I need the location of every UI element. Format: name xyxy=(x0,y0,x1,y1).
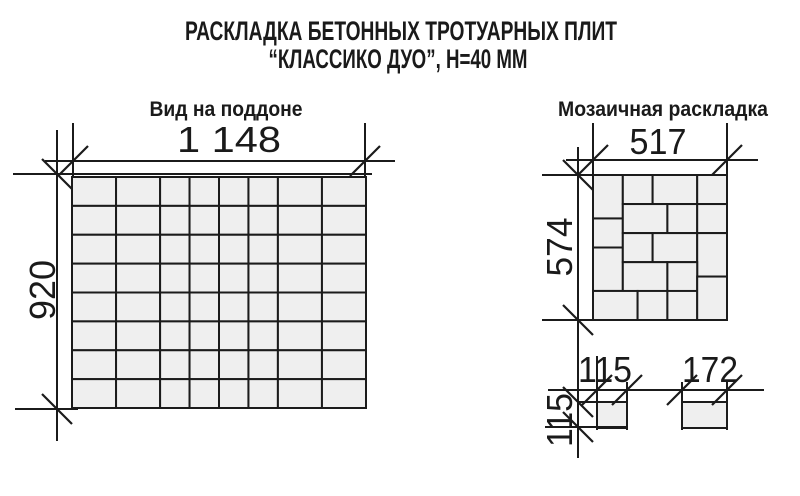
pallet-tile xyxy=(322,350,366,379)
pallet-tile xyxy=(160,350,189,379)
pallet-tile xyxy=(190,321,219,350)
pallet-tile xyxy=(72,350,116,379)
mosaic-tile xyxy=(623,233,653,262)
pallet-tile xyxy=(190,177,219,206)
pallet-tile xyxy=(72,293,116,322)
pallet-tile xyxy=(190,206,219,235)
mosaic-tile xyxy=(593,248,623,291)
pallet-height-dimension: 920 xyxy=(22,260,63,320)
pallet-tile xyxy=(322,235,366,264)
pallet-tile xyxy=(248,177,277,206)
pallet-tile xyxy=(219,177,248,206)
mosaic-pattern xyxy=(593,175,727,320)
pallet-tile xyxy=(219,321,248,350)
pallet-tile xyxy=(322,206,366,235)
pallet-tile xyxy=(278,264,322,293)
pallet-tile xyxy=(278,321,322,350)
pallet-tile xyxy=(278,177,322,206)
mosaic-tile xyxy=(697,233,727,276)
mosaic-tile xyxy=(653,233,698,262)
pallet-tile xyxy=(219,235,248,264)
pallet-tile xyxy=(160,206,189,235)
pallet-tile xyxy=(248,235,277,264)
pallet-tile xyxy=(219,264,248,293)
rect-tile-sample xyxy=(682,402,727,428)
mosaic-tile xyxy=(667,262,697,291)
pallet-tile xyxy=(278,350,322,379)
pallet-tile xyxy=(116,264,160,293)
pallet-tile xyxy=(72,235,116,264)
main-title-line2: “КЛАССИКО ДУО”, Н=40 ММ xyxy=(269,44,528,74)
pallet-tile xyxy=(248,321,277,350)
pallet-tile xyxy=(116,177,160,206)
pallet-tile xyxy=(116,293,160,322)
pallet-tile xyxy=(322,321,366,350)
pallet-tile xyxy=(116,321,160,350)
mosaic-tile xyxy=(623,262,668,291)
mosaic-tile xyxy=(623,175,653,204)
pallet-tile xyxy=(160,321,189,350)
square-tile-width-dimension: 115 xyxy=(578,349,632,390)
pallet-grid xyxy=(72,177,366,408)
pallet-tile xyxy=(190,350,219,379)
mosaic-tile xyxy=(593,218,623,247)
pallet-view-label: Вид на поддоне xyxy=(150,98,303,121)
mosaic-tile xyxy=(653,175,698,204)
paving-layout-diagram: РАСКЛАДКА БЕТОННЫХ ТРОТУАРНЫХ ПЛИТ “КЛАС… xyxy=(0,0,800,496)
mosaic-tile xyxy=(667,291,697,320)
mosaic-height-dimension: 574 xyxy=(539,218,580,277)
pallet-tile xyxy=(322,379,366,408)
pallet-tile xyxy=(160,379,189,408)
pallet-tile xyxy=(278,293,322,322)
pallet-tile xyxy=(116,379,160,408)
mosaic-layout-label: Мозаичная раскладка xyxy=(558,98,768,121)
rect-tile-width-dimension: 172 xyxy=(682,349,738,390)
pallet-tile xyxy=(72,321,116,350)
pallet-tile xyxy=(278,206,322,235)
pallet-tile xyxy=(322,293,366,322)
pallet-tile xyxy=(160,264,189,293)
pallet-tile xyxy=(322,264,366,293)
mosaic-tile xyxy=(623,204,668,233)
pallet-tile xyxy=(219,293,248,322)
pallet-tile xyxy=(72,206,116,235)
pallet-tile xyxy=(248,206,277,235)
pallet-tile xyxy=(248,293,277,322)
single-tiles xyxy=(597,402,727,428)
pallet-tile xyxy=(190,264,219,293)
pallet-tile xyxy=(219,206,248,235)
mosaic-tile xyxy=(593,291,638,320)
mosaic-width-dimension: 517 xyxy=(630,121,687,162)
pallet-tile xyxy=(160,235,189,264)
square-tile-height-dimension: 115 xyxy=(539,393,580,447)
mosaic-tile xyxy=(593,175,623,218)
pallet-tile xyxy=(160,177,189,206)
pallet-tile xyxy=(190,379,219,408)
mosaic-tile xyxy=(667,204,697,233)
pallet-tile xyxy=(72,177,116,206)
paving-layout-drawing: РАСКЛАДКА БЕТОННЫХ ТРОТУАРНЫХ ПЛИТ “КЛАС… xyxy=(0,0,800,496)
pallet-tile xyxy=(116,206,160,235)
pallet-tile xyxy=(219,379,248,408)
pallet-width-dimension: 1 148 xyxy=(177,119,281,160)
pallet-tile xyxy=(116,235,160,264)
pallet-tile xyxy=(248,379,277,408)
pallet-tile xyxy=(248,350,277,379)
pallet-tile xyxy=(248,264,277,293)
pallet-tile xyxy=(278,235,322,264)
mosaic-tile xyxy=(638,291,668,320)
mosaic-tile xyxy=(697,175,727,204)
pallet-tile xyxy=(219,350,248,379)
pallet-tile xyxy=(278,379,322,408)
pallet-tile xyxy=(190,235,219,264)
pallet-tile xyxy=(322,177,366,206)
pallet-tile xyxy=(116,350,160,379)
mosaic-tile xyxy=(697,204,727,233)
pallet-tile xyxy=(160,293,189,322)
pallet-tile xyxy=(190,293,219,322)
pallet-tile xyxy=(72,379,116,408)
pallet-tile xyxy=(72,264,116,293)
square-tile-sample xyxy=(597,402,627,428)
mosaic-tile xyxy=(697,277,727,320)
main-title-line1: РАСКЛАДКА БЕТОННЫХ ТРОТУАРНЫХ ПЛИТ xyxy=(185,16,617,46)
